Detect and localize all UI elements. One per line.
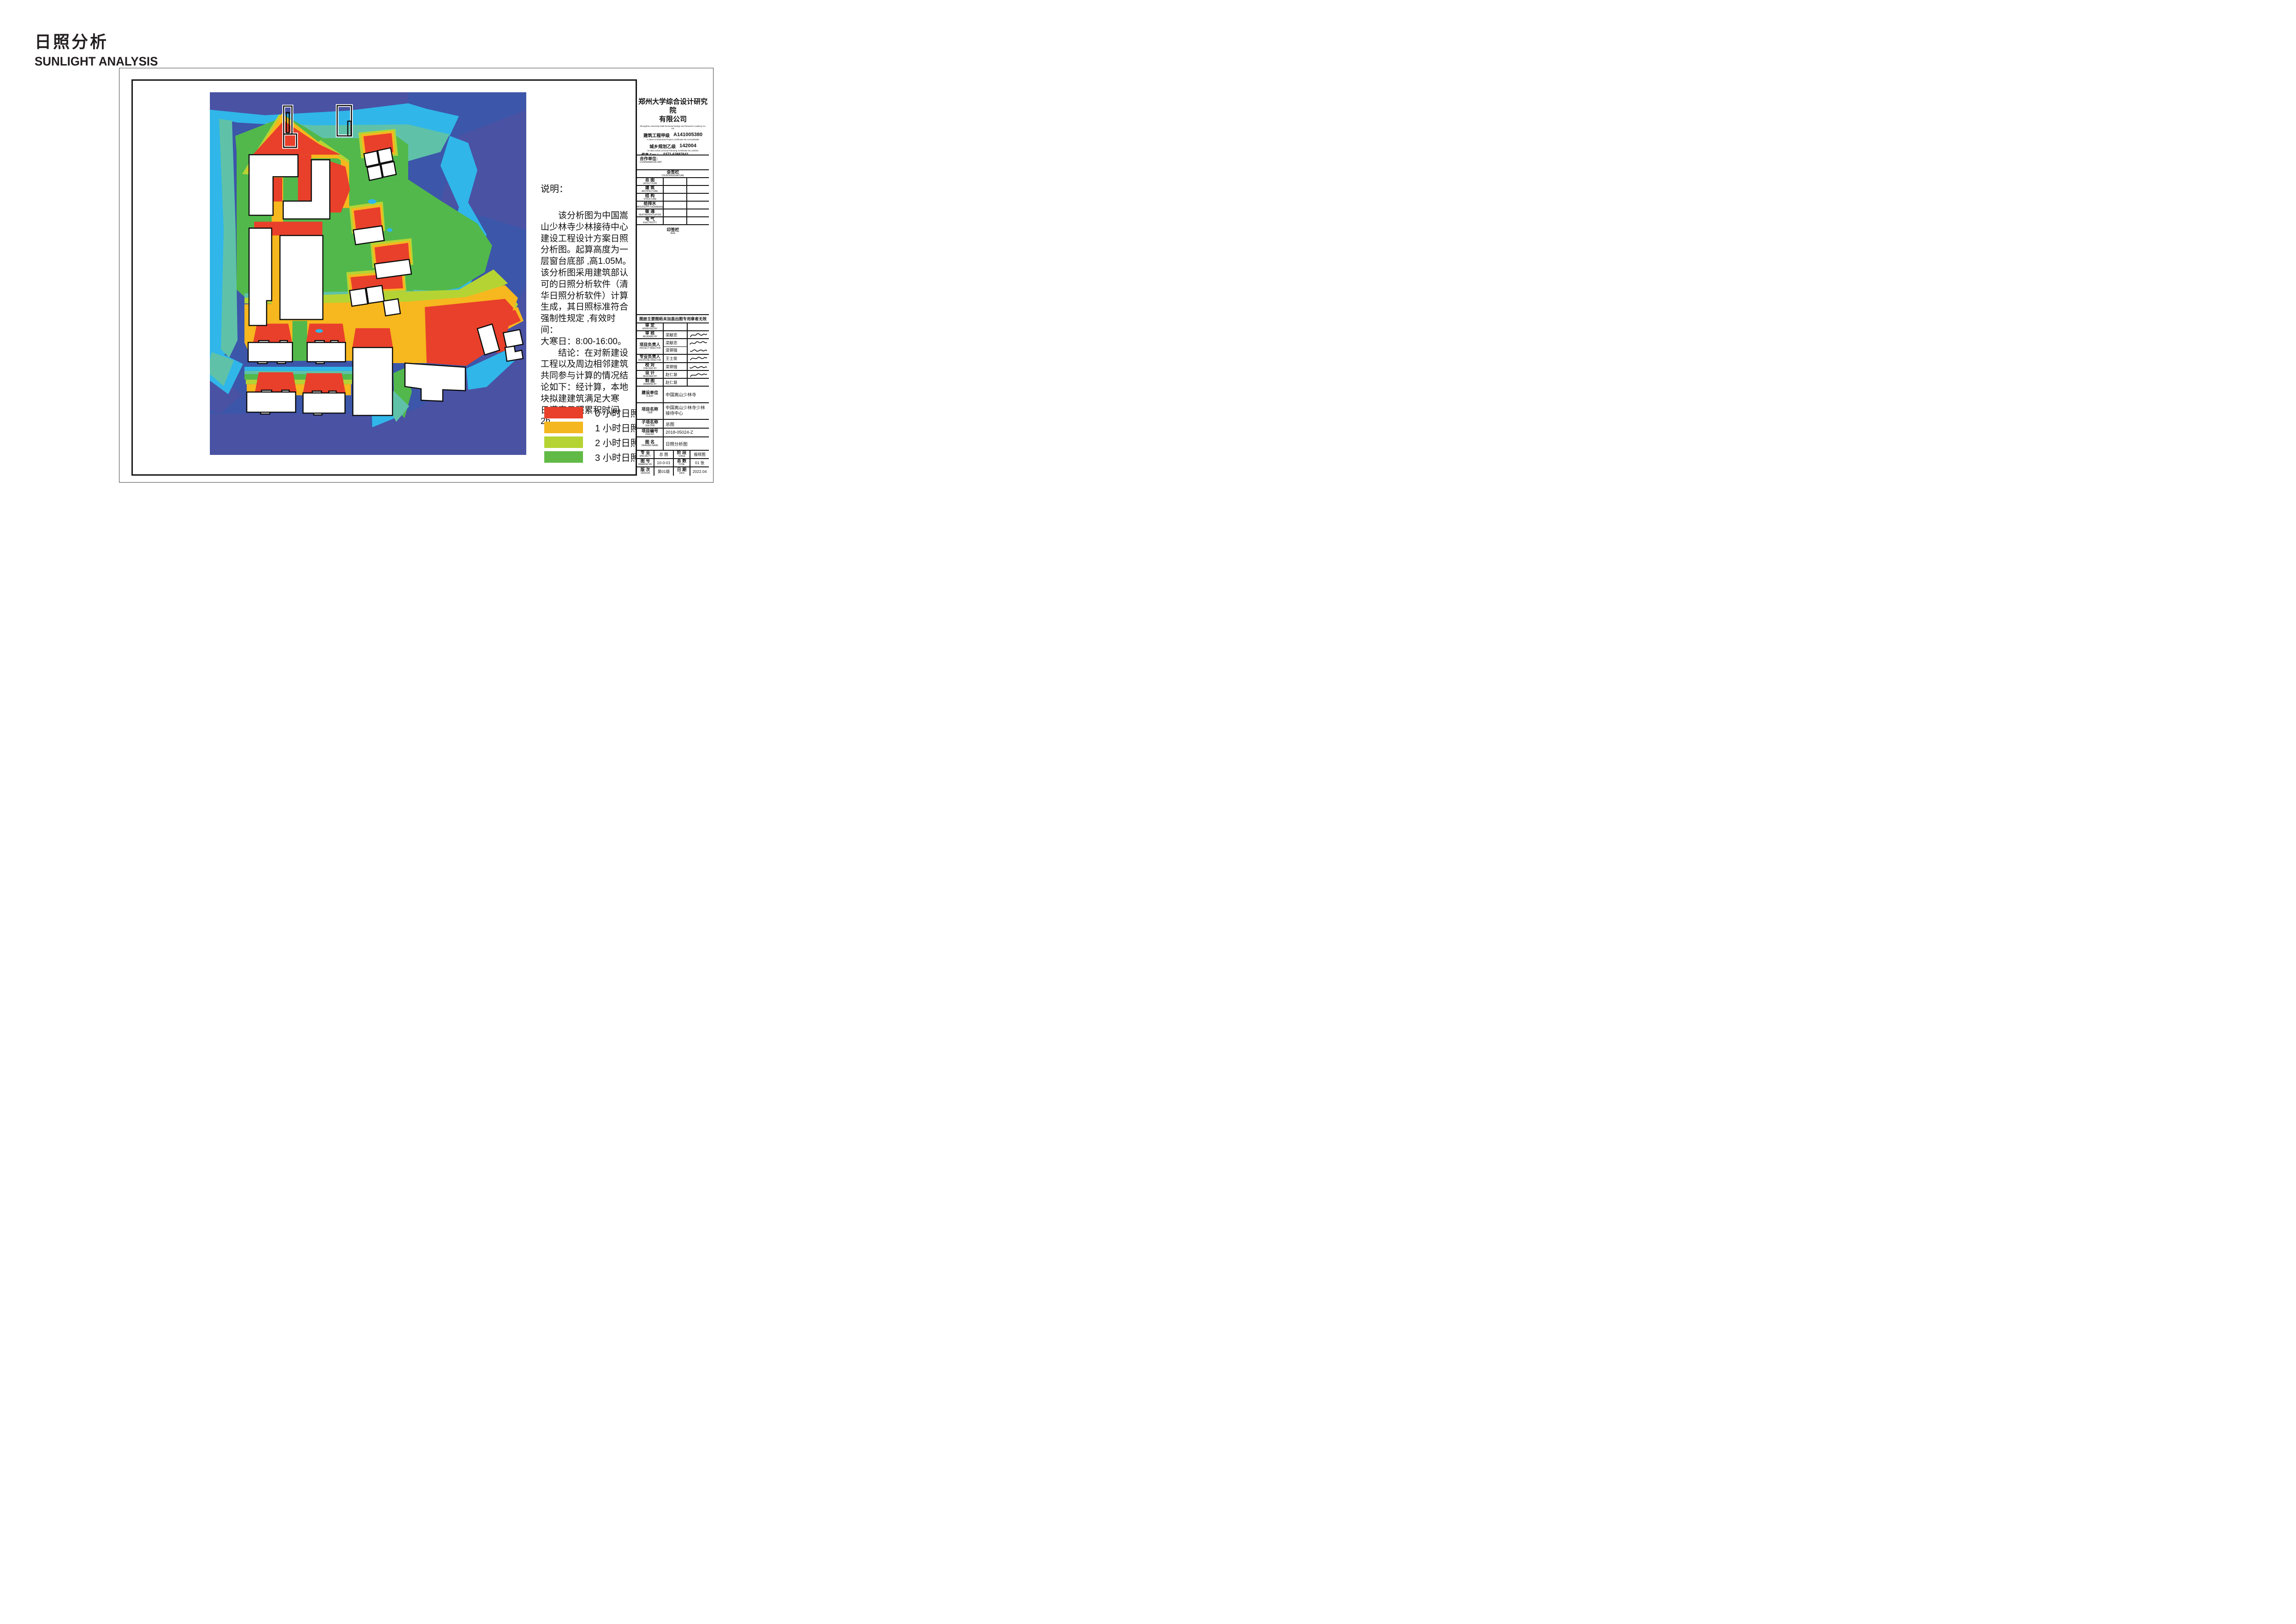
approval-signature-cell xyxy=(687,363,709,370)
discipline-en: LAYOUT PLAN xyxy=(643,183,657,185)
project-row: 项目名称ITEM 中国嵩山少林寺少林 接待中心 xyxy=(637,403,709,420)
countersign-cell xyxy=(686,202,709,209)
legend-label: 3 小时日照 xyxy=(595,450,640,464)
approval-en: DRAWING BY xyxy=(643,383,657,386)
project-label-en: Sub-ITEM xyxy=(645,425,654,428)
legend-item: 0 小时日照 xyxy=(544,406,640,418)
approval-en: DESIGNED BY xyxy=(643,376,657,378)
footer-row: 专 业SPECIALTY 总 图 阶 段STAGE 报规图 xyxy=(637,451,709,459)
legend-swatch-1h xyxy=(544,422,583,433)
footer-row: 版 次VERSION 第01版 日 期DATE 2022.04 xyxy=(637,467,709,476)
signature-scribble xyxy=(689,332,708,338)
approval-row: 审 定APPROVED BY xyxy=(637,323,709,331)
cert1-cn: 建筑工程甲级 xyxy=(643,132,670,138)
footer-label-en: TOTAL xyxy=(678,464,685,466)
project-label-en: ITEM xyxy=(648,412,653,415)
countersign-cell xyxy=(686,186,709,193)
footer-value: 第01版 xyxy=(654,467,673,476)
notes-heading: 说明： xyxy=(541,181,633,195)
approval-name: 梁钢强 xyxy=(663,363,687,370)
approval-signature-cell xyxy=(687,331,709,338)
legend-label: 2 小时日照 xyxy=(595,436,640,449)
project-value: 总图 xyxy=(663,420,709,428)
approval-en: DISCIPLINE DIRECTOR xyxy=(638,359,661,362)
company-name-cn2: 有限公司 xyxy=(637,115,709,124)
legend-item: 1 小时日照 xyxy=(544,421,640,433)
approval-signature-cell xyxy=(687,339,709,354)
footer-label-en: DRAWING NO. xyxy=(638,464,653,466)
discipline-en: ARCHITECTURE xyxy=(642,191,658,193)
discipline-en: STRUCTURE xyxy=(643,198,656,201)
notice-text: 图册主要图纸未加盖出图专用章者无效 xyxy=(637,315,709,323)
countersign-cell xyxy=(686,209,709,216)
discipline-en: ELECTRICITY xyxy=(643,222,656,225)
countersign-cell xyxy=(686,178,709,185)
countersign-cell xyxy=(663,217,686,224)
approval-en: CHECKED BY xyxy=(643,368,656,370)
sunlight-heatmap-svg xyxy=(210,92,526,455)
cert-1: 建筑工程甲级 A141005380 xyxy=(637,132,709,138)
approval-name: 梁钢强 xyxy=(664,347,687,354)
countersign-cell xyxy=(663,178,686,185)
footer-value: 总 图 xyxy=(654,451,673,458)
approval-signature-cell xyxy=(687,355,709,362)
page-title-cn: 日照分析 xyxy=(35,29,163,53)
title-block: 郑州大学综合设计研究院 有限公司 ZhengZhou University Mu… xyxy=(636,79,709,476)
countersign-row: 电 气ELECTRICITY xyxy=(637,217,709,225)
project-value: 2018-05024-Z xyxy=(663,429,709,436)
approval-name: 梁献忠 xyxy=(663,331,687,338)
fax-label: 传真 Fax ： xyxy=(642,152,660,155)
countersign-cell xyxy=(663,202,686,209)
discipline-en: WATERSUPPLY&DRAINAGE xyxy=(636,206,664,209)
project-label-en: ITEM NO. xyxy=(645,434,654,436)
approval-signature-cell xyxy=(687,323,709,330)
legend: 0 小时日照 1 小时日照 2 小时日照 3 小时日照 xyxy=(544,406,640,466)
discipline-en: HEATINGVENTILATION xyxy=(639,214,661,217)
footer-label-en: STAGE xyxy=(678,455,685,458)
sunlight-analysis-map xyxy=(210,92,526,455)
approval-name: 赵仁慧 xyxy=(663,371,687,378)
approval-row: 校 对CHECKED BY 梁钢强 xyxy=(637,363,709,371)
project-row: 项目编号ITEM NO. 2018-05024-Z xyxy=(637,429,709,437)
company-section: 郑州大学综合设计研究院 有限公司 ZhengZhou University Mu… xyxy=(637,79,709,155)
fax-value: 0371-63887641 xyxy=(663,152,689,155)
approval-name: 王士俊 xyxy=(663,355,687,362)
notes-block: 说明： 该分析图为中国嵩 山少林寺少林接待中心 建设工程设计方案日照 分析图。起… xyxy=(541,181,633,428)
approval-en: APPROVED BY xyxy=(642,328,657,331)
footer-row: 图 号DRAWING NO. 10-0-01 总 数TOTAL 01 张 xyxy=(637,459,709,467)
project-label-en: DRAWING NAME xyxy=(642,445,658,448)
approval-signature-cell xyxy=(687,379,709,386)
seal-section: 印签栏 SEAL xyxy=(637,225,709,315)
approval-row: 制 图DRAWING BY 赵仁慧 xyxy=(637,379,709,387)
project-value: 中国嵩山少林寺少林 接待中心 xyxy=(663,403,709,419)
approval-en: REVIEWED BY xyxy=(642,336,657,339)
countersign-cell xyxy=(686,217,709,224)
company-name-en: ZhengZhou University Multi-functional De… xyxy=(639,125,707,130)
signature-scribble xyxy=(689,371,708,378)
countersign-cell xyxy=(663,194,686,201)
legend-swatch-0h xyxy=(544,407,583,418)
page-title-en: SUNLIGHT ANALYSIS xyxy=(35,54,158,69)
drawing-sheet-page: 日照分析 SUNLIGHT ANALYSIS xyxy=(0,0,723,512)
legend-item: 3 小时日照 xyxy=(544,451,640,463)
signature-scribble xyxy=(689,340,708,346)
legend-label: 0 小时日照 xyxy=(595,406,640,419)
approval-row: 审 核REVIEWED BY 梁献忠 xyxy=(637,331,709,339)
approval-row: 专业负责人DISCIPLINE DIRECTOR 王士俊 xyxy=(637,355,709,363)
seal-en: SEAL xyxy=(641,233,705,235)
countersign-cell xyxy=(663,186,686,193)
legend-label: 1 小时日照 xyxy=(595,421,640,434)
signature-scribble xyxy=(689,347,708,353)
footer-value: 报规图 xyxy=(690,451,709,458)
cert-2: 城乡规划乙级 142004 xyxy=(637,143,709,149)
coop-en: COOPERRATION UNIT xyxy=(640,161,702,164)
footer-label-en: SPECIALTY xyxy=(640,455,651,458)
countersign-row: 暖 通HEATINGVENTILATION xyxy=(637,209,709,217)
signature-scribble xyxy=(689,364,708,370)
legend-item: 2 小时日照 xyxy=(544,436,640,448)
countersign-row: 总 图LAYOUT PLAN xyxy=(637,178,709,186)
notes-body: 该分析图为中国嵩 山少林寺少林接待中心 建设工程设计方案日照 分析图。起算高度为… xyxy=(541,210,633,428)
approval-row: 设 计DESIGNED BY 赵仁慧 xyxy=(637,371,709,379)
approval-signature-cell xyxy=(687,371,709,378)
footer-value: 2022.04 xyxy=(690,467,709,476)
company-name-cn1: 郑州大学综合设计研究院 xyxy=(637,98,709,115)
footer-label-en: VERSION xyxy=(641,472,650,475)
footer-value: 01 张 xyxy=(690,459,709,466)
project-row: 图 名DRAWING NAME 日照分析图 xyxy=(637,437,709,451)
cert2-cn: 城乡规划乙级 xyxy=(649,143,676,149)
footer-label-en: DATE xyxy=(679,472,684,475)
cooperation-unit-section: 合作单位: COOPERRATION UNIT xyxy=(637,155,709,170)
approval-name xyxy=(663,323,687,330)
cert2-no: 142004 xyxy=(679,143,696,149)
project-row: 子项名称Sub-ITEM 总图 xyxy=(637,420,709,429)
countersign-row: 结 构STRUCTURE xyxy=(637,194,709,202)
cert1-no: A141005380 xyxy=(673,132,702,138)
approval-row: 项目负责人PROJECT DIRECTOR 梁献忠 梁钢强 xyxy=(637,339,709,355)
page-title: 日照分析 SUNLIGHT ANALYSIS xyxy=(35,29,163,69)
legend-swatch-2h xyxy=(544,436,583,448)
project-value: 中国嵩山少林寺 xyxy=(663,387,709,402)
countersign-cell xyxy=(663,209,686,216)
approval-name: 赵仁慧 xyxy=(663,379,687,386)
countersignature-header: 会签栏 COUNTERSIGNATURE xyxy=(637,170,709,178)
countersign-row: 建 筑ARCHITECTURE xyxy=(637,186,709,194)
project-row: 建设单位CLIENT 中国嵩山少林寺 xyxy=(637,387,709,403)
legend-swatch-3h xyxy=(544,451,583,463)
countersign-cell xyxy=(686,194,709,201)
cert1-en: A class Architectural Project Certificat… xyxy=(637,138,709,141)
signature-scribble xyxy=(689,355,708,362)
project-label-en: CLIENT xyxy=(646,395,654,398)
project-value: 日照分析图 xyxy=(663,437,709,450)
cert2-en: B class Urban & Rural Planning Certifica… xyxy=(637,149,709,152)
footer-value: 10-0-01 xyxy=(654,459,673,466)
approval-name: 梁献忠 xyxy=(664,339,687,347)
countersign-row: 给排水WATERSUPPLY&DRAINAGE xyxy=(637,202,709,209)
approval-en: PROJECT DIRECTOR xyxy=(639,347,660,350)
countersign-en: COUNTERSIGNATURE xyxy=(662,175,684,178)
